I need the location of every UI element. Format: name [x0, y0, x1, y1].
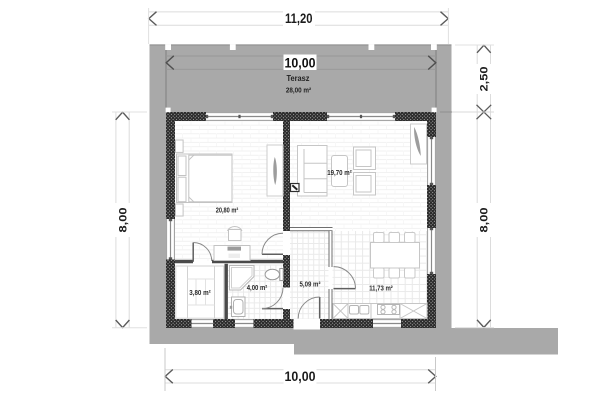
svg-text:10,00: 10,00: [285, 54, 316, 70]
svg-text:Terasz: Terasz: [287, 74, 310, 83]
svg-text:28,00 m²: 28,00 m²: [286, 86, 312, 95]
svg-text:11,73 m²: 11,73 m²: [369, 283, 393, 292]
svg-text:3,80 m²: 3,80 m²: [189, 288, 211, 297]
svg-text:8,00: 8,00: [117, 208, 129, 233]
svg-text:8,00: 8,00: [479, 208, 491, 233]
svg-text:5,09 m²: 5,09 m²: [300, 279, 321, 288]
svg-text:4,00 m²: 4,00 m²: [247, 283, 268, 292]
svg-text:19,70 m²: 19,70 m²: [327, 168, 352, 177]
svg-text:2,50: 2,50: [479, 67, 491, 92]
svg-text:20,80 m²: 20,80 m²: [216, 206, 239, 215]
svg-text:11,20: 11,20: [285, 10, 313, 26]
svg-text:10,00: 10,00: [285, 368, 316, 384]
